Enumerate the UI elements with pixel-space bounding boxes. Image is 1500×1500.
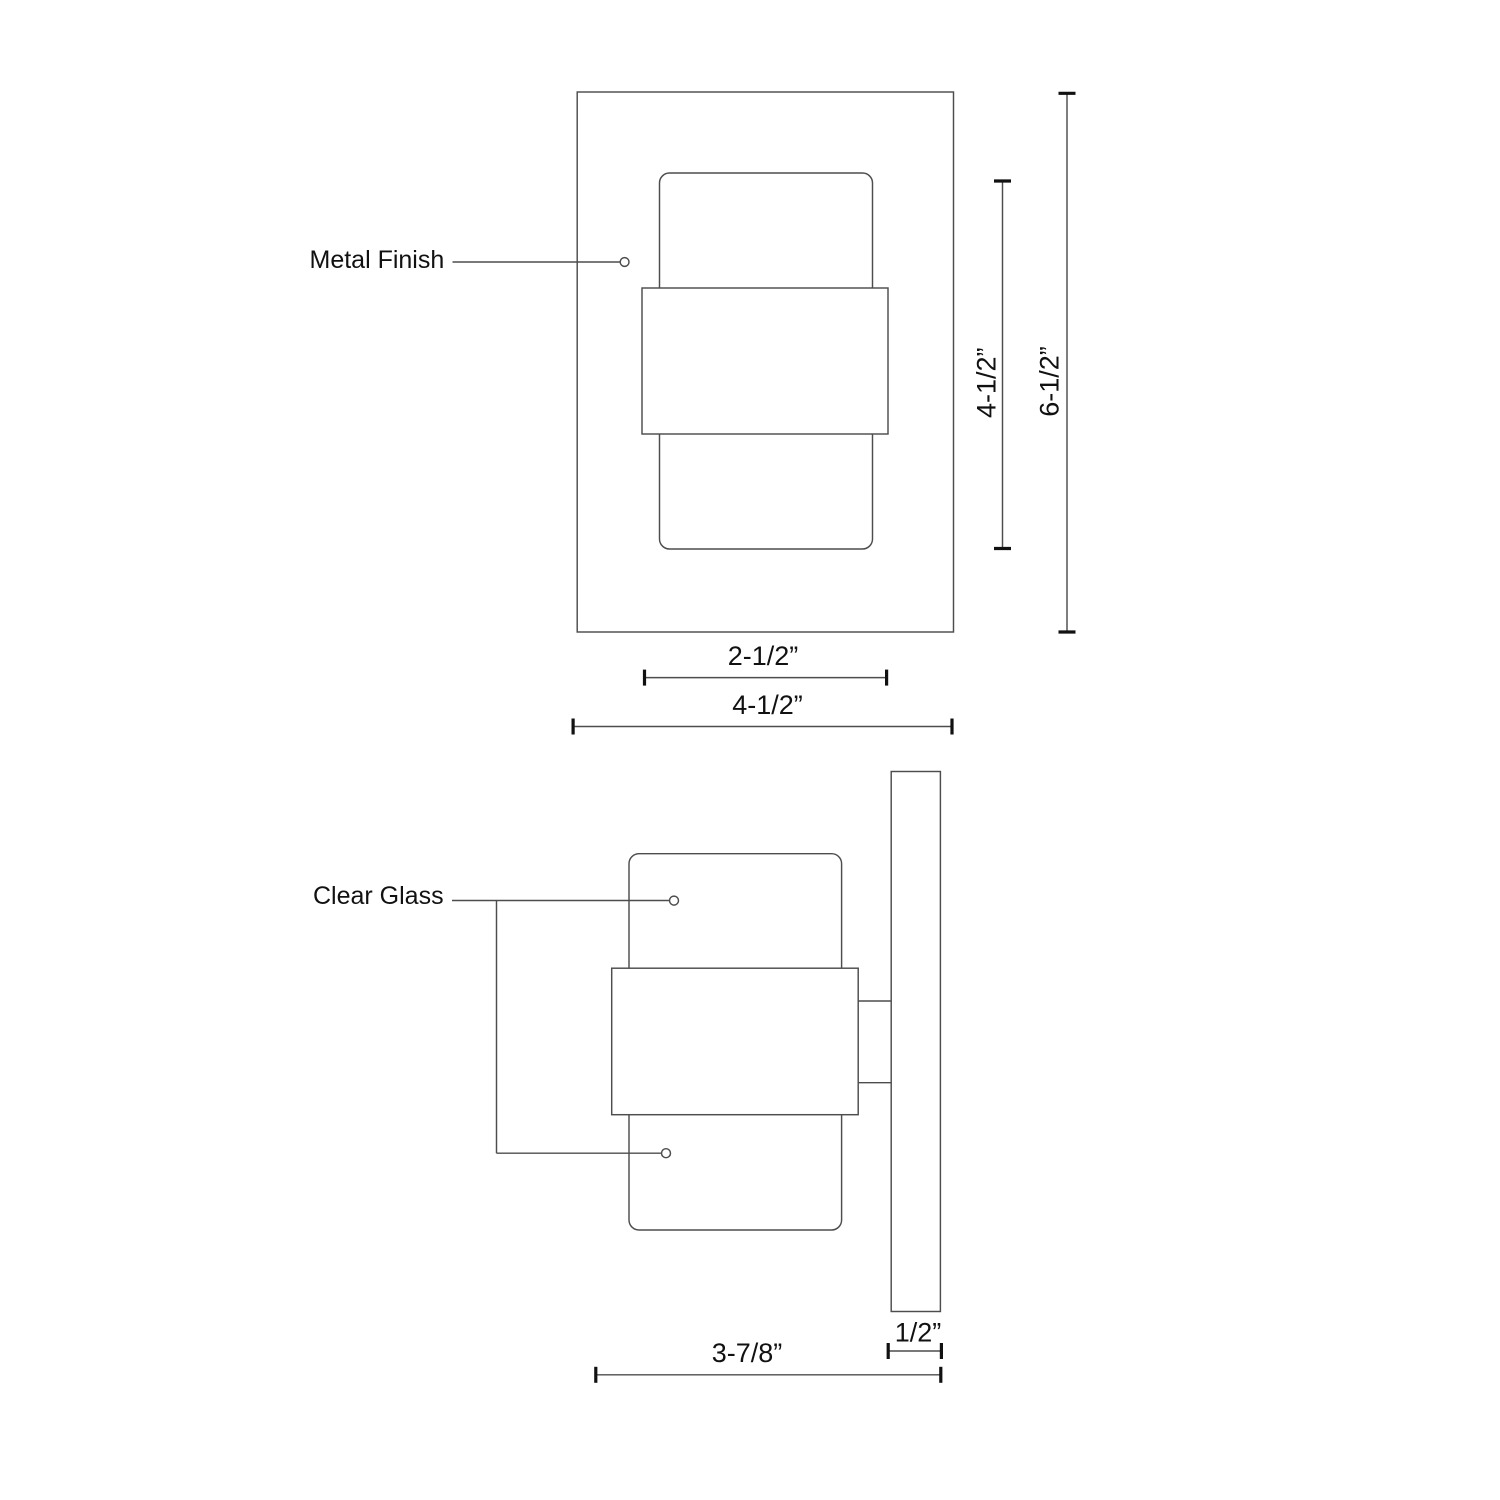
svg-text:2-1/2”: 2-1/2” xyxy=(728,641,799,671)
svg-text:Metal Finish: Metal Finish xyxy=(310,246,445,274)
svg-text:1/2”: 1/2” xyxy=(895,1318,942,1348)
svg-text:Clear Glass: Clear Glass xyxy=(313,882,444,910)
svg-text:4-1/2”: 4-1/2” xyxy=(972,347,1002,418)
svg-text:3-7/8”: 3-7/8” xyxy=(712,1338,783,1368)
svg-text:4-1/2”: 4-1/2” xyxy=(732,690,803,720)
svg-text:6-1/2”: 6-1/2” xyxy=(1035,346,1065,417)
